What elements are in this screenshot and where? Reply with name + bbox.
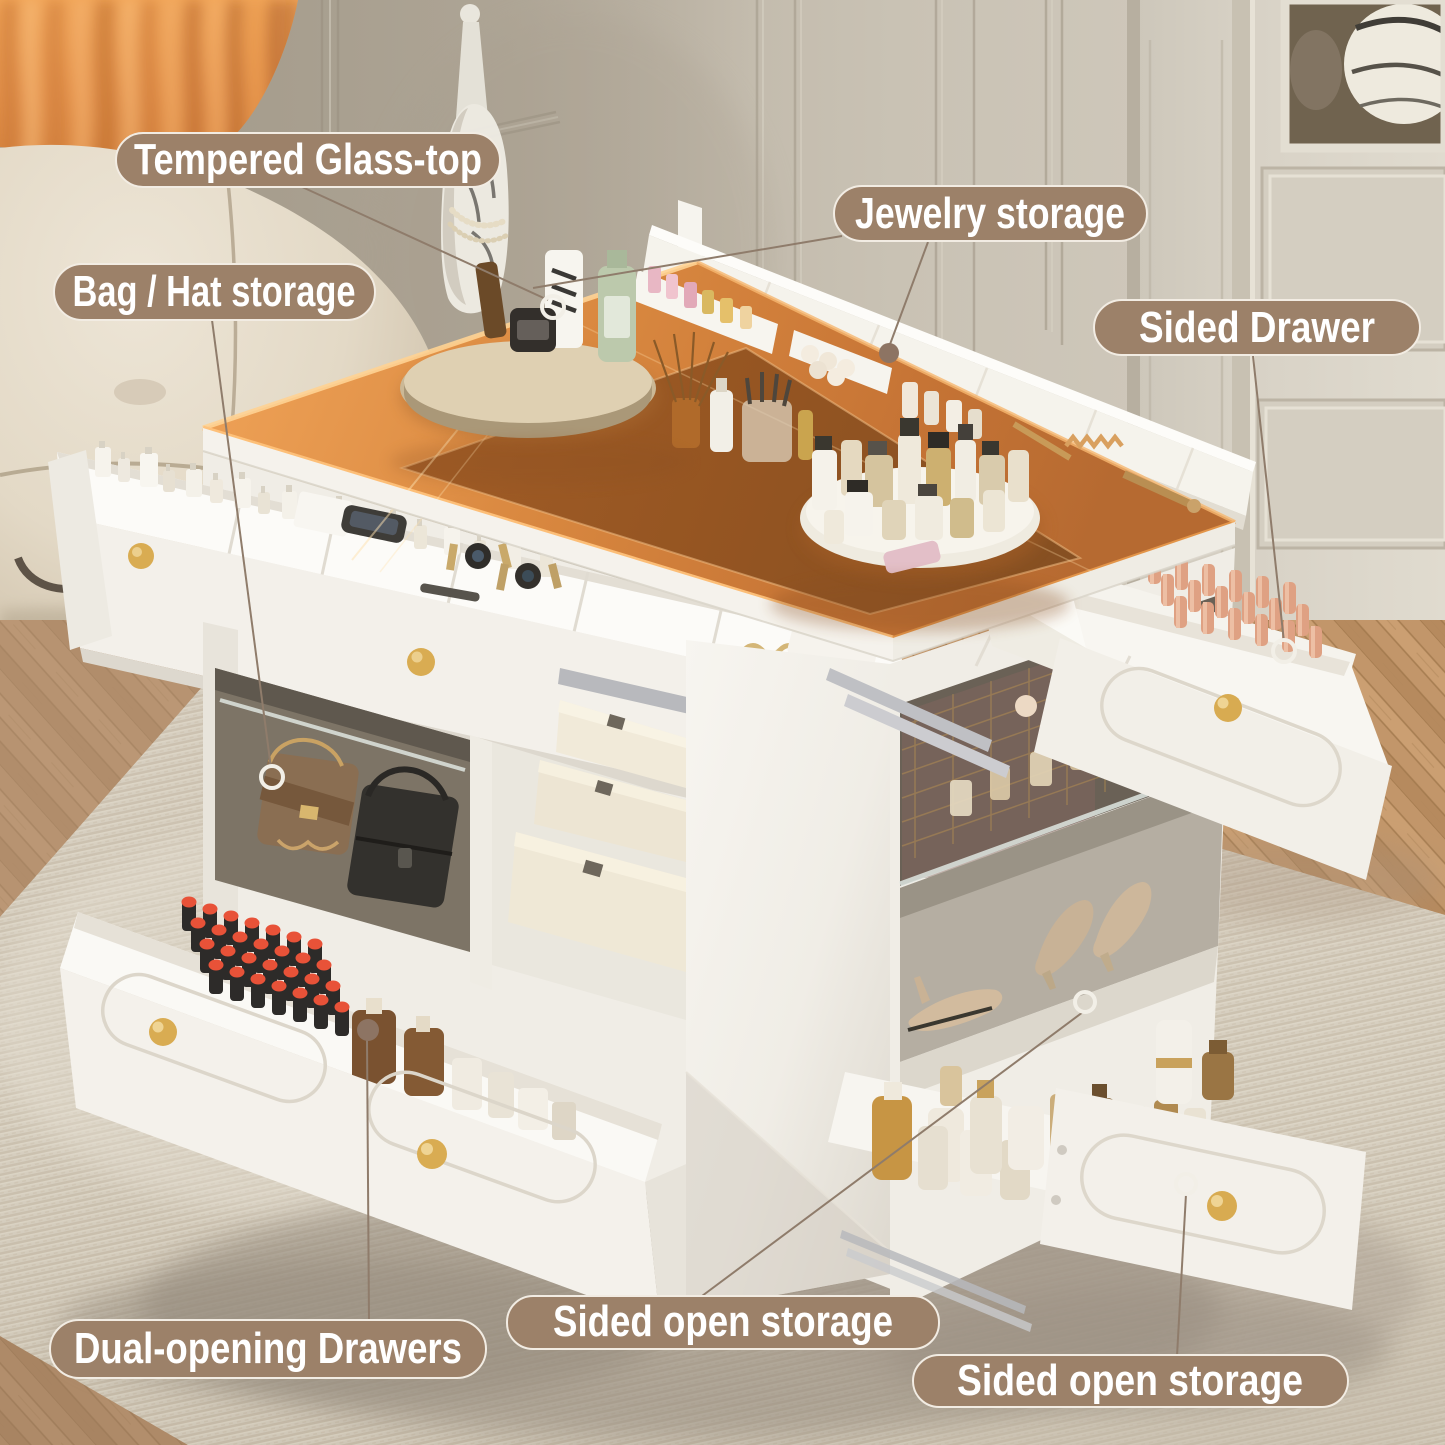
svg-text:Sided Drawer: Sided Drawer bbox=[1139, 303, 1375, 352]
svg-text:Jewelry storage: Jewelry storage bbox=[855, 189, 1125, 238]
svg-text:Sided open storage: Sided open storage bbox=[553, 1297, 893, 1346]
svg-text:Dual-opening Drawers: Dual-opening Drawers bbox=[74, 1324, 462, 1373]
svg-text:Bag / Hat storage: Bag / Hat storage bbox=[73, 267, 356, 316]
svg-text:Sided open storage: Sided open storage bbox=[957, 1356, 1303, 1405]
svg-text:Tempered Glass-top: Tempered Glass-top bbox=[134, 135, 482, 184]
